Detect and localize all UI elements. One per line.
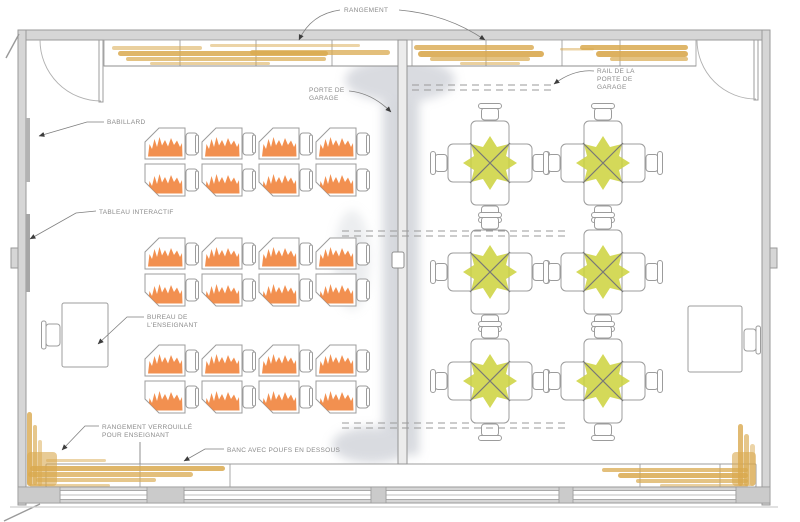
label-rail-line2: PORTE DE xyxy=(597,76,633,83)
wall-right-pilaster xyxy=(770,248,777,268)
label-rail-line3: GARAGE xyxy=(597,84,627,91)
partition-latch xyxy=(392,252,404,268)
wall-right xyxy=(762,30,770,505)
label-tableau: TABLEAU INTERACTIF xyxy=(99,209,174,216)
bulletin-board xyxy=(26,118,30,182)
label-bureau-line2: L'ENSEIGNANT xyxy=(147,322,198,329)
wall-top xyxy=(18,30,770,40)
label-rangement: RANGEMENT xyxy=(344,7,388,14)
interactive-whiteboard xyxy=(26,214,30,292)
label-rangement-verrouille-line1: RANGEMENT VERROUILLÉ xyxy=(102,422,193,431)
label-rail-line1: RAIL DE LA xyxy=(597,68,635,75)
label-bureau-line1: BUREAU DE xyxy=(147,314,188,321)
label-porte-line1: PORTE DE xyxy=(309,87,345,94)
wall-left-pilaster xyxy=(11,248,18,268)
wall-left xyxy=(18,30,26,505)
label-banc: BANC AVEC POUFS EN DESSOUS xyxy=(227,447,341,454)
floor-plan-drawing: RANGEMENT RAIL DE LA PORTE DE GARAGE POR… xyxy=(0,0,800,522)
label-porte-line2: GARAGE xyxy=(309,95,339,102)
label-rangement-verrouille-line2: POUR ENSEIGNANT xyxy=(102,432,169,439)
label-babillard: BABILLARD xyxy=(107,119,145,126)
floor-plan: RANGEMENT RAIL DE LA PORTE DE GARAGE POR… xyxy=(0,0,800,522)
